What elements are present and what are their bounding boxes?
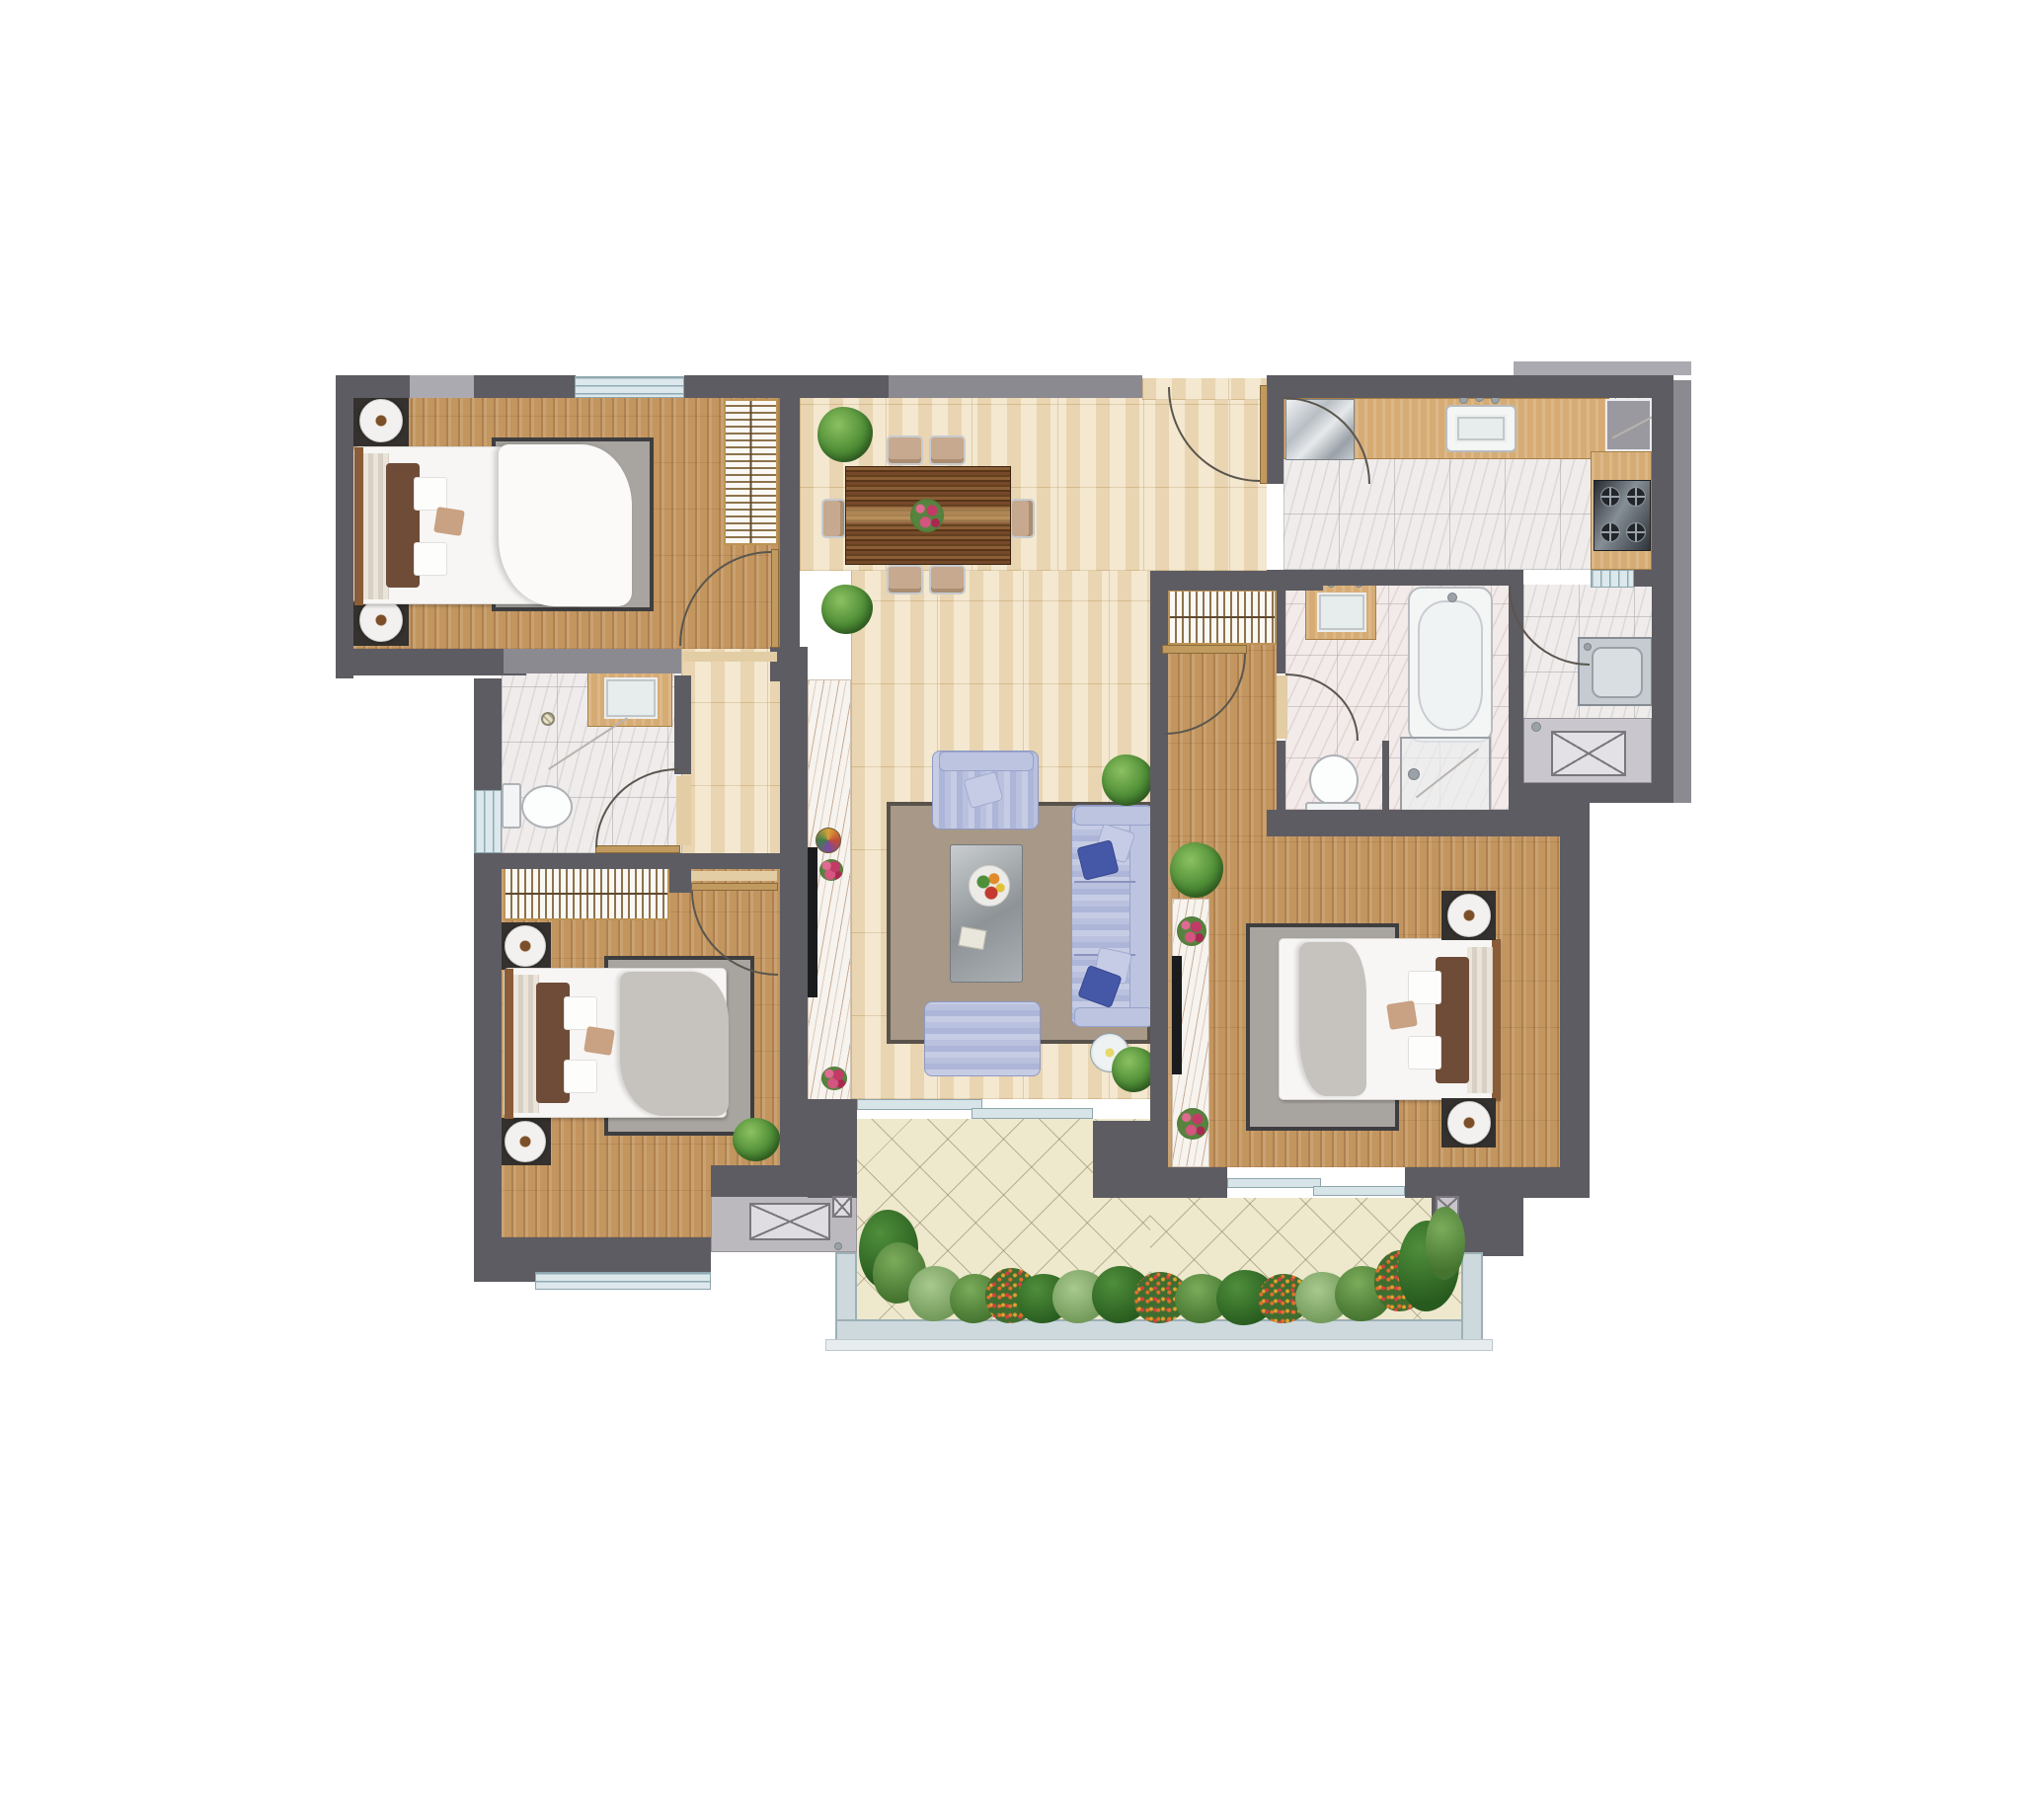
- wall: [474, 678, 502, 1282]
- book: [958, 926, 986, 950]
- armchair: [932, 751, 1039, 830]
- sliding-window-master: [1227, 1178, 1321, 1188]
- wall: [780, 398, 800, 649]
- wall: [669, 869, 691, 893]
- wardrobe-bedroom2: [724, 399, 778, 545]
- wall: [1652, 380, 1673, 803]
- sofa: [1071, 805, 1154, 1026]
- flower-decor: [1177, 916, 1206, 946]
- sink-basin: [1317, 593, 1366, 632]
- wall: [1277, 585, 1285, 673]
- wall: [780, 681, 808, 1167]
- flower-decor: [1177, 1108, 1208, 1140]
- sliding-window-master: [1313, 1186, 1405, 1196]
- wall: [1277, 741, 1285, 810]
- balcony-railing-outer: [825, 1339, 1493, 1351]
- table-lamp: [1447, 894, 1491, 937]
- wall: [502, 853, 790, 869]
- wall: [1093, 1121, 1150, 1198]
- dining-chair: [887, 435, 923, 465]
- bed-linen: [1467, 947, 1493, 1093]
- pillow: [1076, 839, 1119, 881]
- burner: [1626, 522, 1646, 542]
- armchair-back: [939, 752, 1034, 771]
- sink-basin: [604, 677, 658, 719]
- gas-hob: [1594, 480, 1651, 551]
- burner: [1600, 522, 1620, 542]
- flower-decor: [819, 859, 843, 881]
- wall: [1514, 361, 1691, 375]
- shower-enclosure: [1400, 737, 1491, 812]
- window-bedroom2: [575, 376, 684, 398]
- sofa-arm: [1074, 806, 1153, 826]
- door-threshold: [691, 871, 777, 881]
- wall: [889, 375, 1142, 398]
- nightstand: [500, 922, 551, 970]
- pillow: [964, 771, 1004, 809]
- bed-drape: [1299, 942, 1366, 1096]
- bathtub: [1408, 587, 1493, 743]
- west-corridor-floor: [681, 649, 780, 869]
- wall: [336, 649, 526, 675]
- headboard: [505, 969, 513, 1119]
- tv-screen: [1172, 956, 1182, 1074]
- flower-decor: [821, 1067, 847, 1090]
- pillow: [1408, 1036, 1441, 1069]
- utility-basin: [749, 1203, 830, 1240]
- shoe-cabinet: [1168, 590, 1277, 645]
- sliding-door-living: [972, 1108, 1093, 1119]
- tub-faucet: [1447, 593, 1457, 602]
- drain-point: [834, 1242, 842, 1250]
- sofa-back: [1129, 812, 1151, 1021]
- dining-chair: [821, 499, 846, 538]
- bed-drape: [499, 444, 632, 606]
- burner: [1626, 487, 1646, 507]
- window-kitchen-laundry: [1591, 570, 1634, 588]
- sink-basin: [1455, 415, 1507, 442]
- corner-cabinet: [1605, 399, 1652, 451]
- bed-drape: [620, 972, 729, 1116]
- nightstand: [353, 395, 409, 446]
- pillow: [1408, 971, 1441, 1004]
- floor-drain: [541, 712, 555, 726]
- corridor-door-leaf: [1162, 645, 1247, 654]
- toilet: [521, 785, 573, 829]
- pillow: [414, 542, 447, 576]
- wall: [1634, 570, 1652, 587]
- balcony-railing: [1461, 1252, 1483, 1341]
- laundry-basin: [1551, 731, 1626, 776]
- wall: [336, 398, 353, 678]
- drain-point: [1531, 722, 1541, 732]
- bathtub-basin: [1418, 600, 1483, 731]
- table-lamp: [359, 598, 403, 642]
- pillow: [433, 507, 465, 536]
- wall: [1673, 380, 1691, 803]
- wall: [674, 675, 691, 774]
- window-bedroom3: [535, 1272, 711, 1290]
- wall: [504, 649, 681, 673]
- dining-chair: [1010, 499, 1035, 538]
- pillow: [414, 477, 447, 511]
- window-guest-bath: [474, 790, 502, 853]
- dining-chair: [929, 435, 966, 465]
- nightstand: [1441, 1098, 1496, 1147]
- toilet: [1309, 754, 1359, 806]
- wardrobe-bedroom3: [504, 867, 669, 920]
- wall: [684, 375, 889, 398]
- table-centerpiece: [910, 499, 944, 532]
- dining-chair: [887, 565, 923, 594]
- pillow: [1386, 1000, 1418, 1030]
- fruit-plate: [969, 865, 1010, 907]
- wall: [1267, 810, 1523, 836]
- kitchen-sink: [1445, 405, 1516, 452]
- wall: [1405, 1167, 1590, 1198]
- tv-screen: [808, 847, 817, 997]
- wall: [1267, 375, 1283, 398]
- dining-chair: [929, 565, 966, 594]
- pillow: [564, 996, 597, 1030]
- pillow: [583, 1026, 615, 1056]
- pillow: [564, 1060, 597, 1093]
- wall: [711, 1165, 857, 1197]
- seat-seam: [1074, 881, 1135, 883]
- floor-drain-box: [832, 1196, 852, 1218]
- wall: [1267, 570, 1523, 586]
- washer-drum: [1592, 647, 1643, 698]
- ottoman-bench: [924, 1001, 1041, 1076]
- floor-plan-canvas: [0, 0, 2022, 1820]
- sliding-door-living: [857, 1099, 982, 1110]
- door-leaf-bedroom2: [771, 549, 779, 648]
- door-threshold: [683, 652, 777, 662]
- table-lamp: [1447, 1101, 1491, 1145]
- entry-door-leaf: [1260, 385, 1268, 484]
- wall: [1523, 803, 1590, 836]
- table-lamp: [505, 925, 546, 967]
- glass-partition: [1382, 741, 1389, 812]
- wall: [1267, 398, 1283, 484]
- table-lamp: [359, 399, 403, 442]
- nightstand: [500, 1118, 551, 1165]
- decor-object: [816, 828, 841, 853]
- wall: [1283, 375, 1673, 398]
- door-threshold: [676, 776, 691, 845]
- burner: [1600, 487, 1620, 507]
- shower-head: [1408, 768, 1420, 780]
- wall: [1560, 836, 1590, 1198]
- table-lamp: [505, 1121, 546, 1162]
- shower-glass-line: [1416, 749, 1479, 799]
- headboard: [354, 447, 363, 605]
- wall: [410, 375, 474, 398]
- toilet-tank: [502, 783, 521, 829]
- nightstand: [1441, 891, 1496, 940]
- wall: [1523, 783, 1673, 803]
- sofa-arm: [1074, 1007, 1153, 1027]
- headboard: [1492, 939, 1501, 1101]
- door-leaf-bedroom3: [691, 883, 778, 891]
